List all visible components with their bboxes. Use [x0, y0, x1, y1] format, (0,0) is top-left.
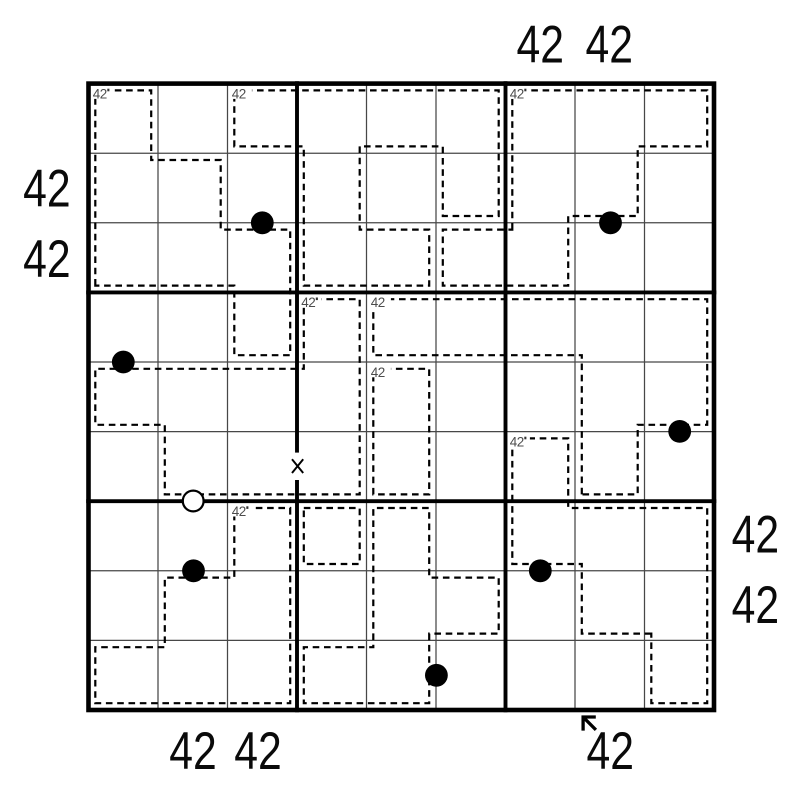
svg-text:42: 42	[586, 722, 634, 781]
svg-text:42: 42	[510, 434, 524, 449]
svg-text:42: 42	[732, 576, 780, 635]
svg-text:42: 42	[371, 295, 385, 310]
svg-text:42: 42	[23, 230, 71, 289]
svg-text:42: 42	[517, 16, 565, 75]
svg-text:42: 42	[232, 504, 246, 519]
svg-text:42: 42	[169, 722, 217, 781]
svg-text:42: 42	[586, 16, 634, 75]
svg-text:42: 42	[301, 295, 315, 310]
svg-text:42: 42	[732, 506, 780, 565]
svg-text:42: 42	[371, 365, 385, 380]
svg-text:42: 42	[93, 86, 107, 101]
svg-text:42: 42	[510, 86, 524, 101]
svg-text:42: 42	[23, 160, 71, 219]
svg-text:42: 42	[234, 722, 282, 781]
svg-text:42: 42	[232, 86, 246, 101]
